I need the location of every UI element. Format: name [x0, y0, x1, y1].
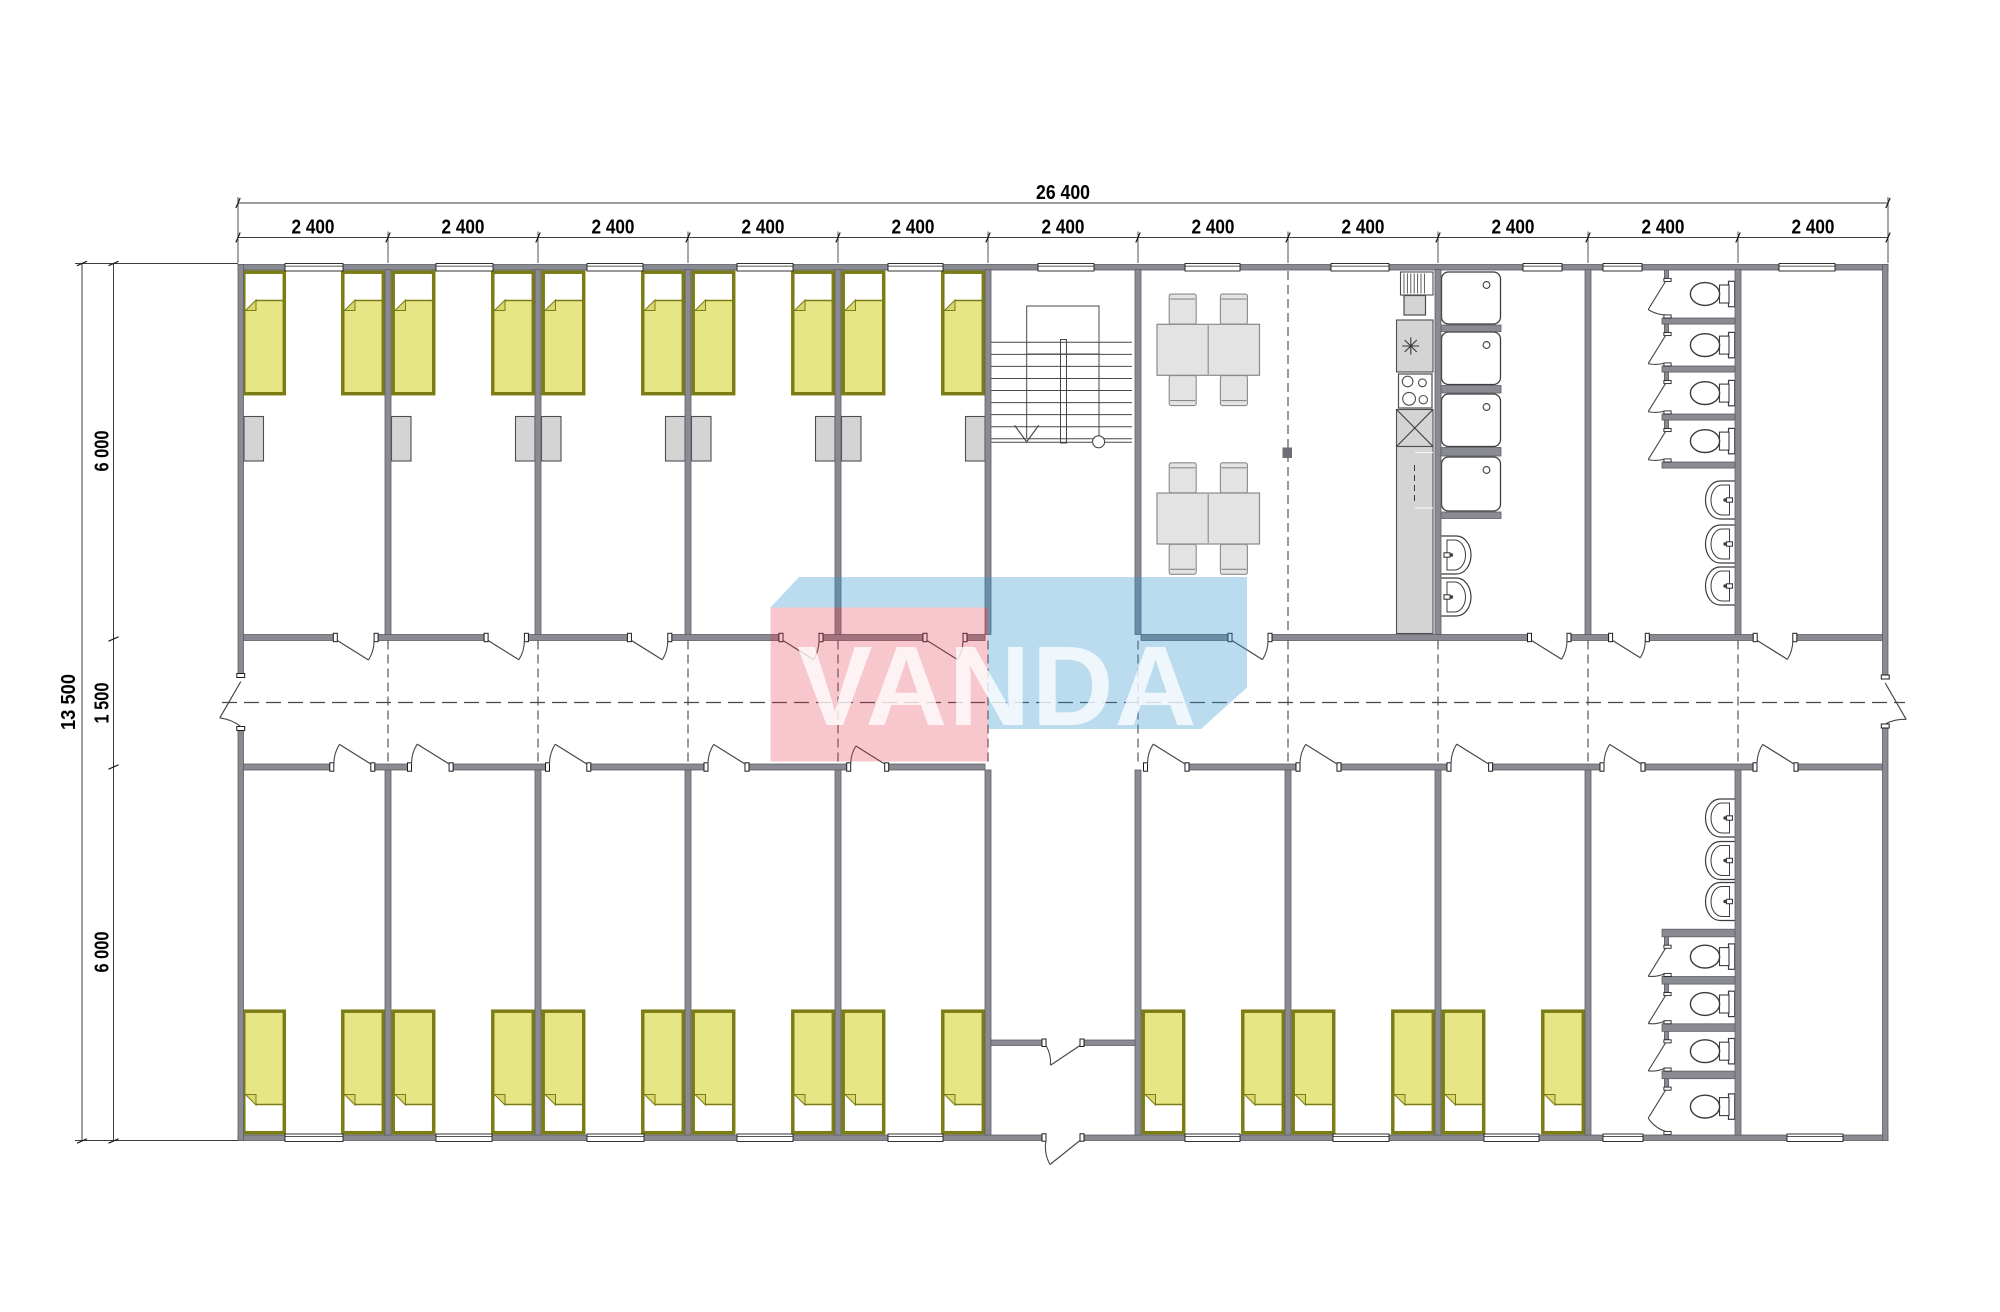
- svg-text:26 400: 26 400: [1036, 182, 1090, 204]
- svg-text:2 400: 2 400: [1042, 217, 1085, 239]
- svg-text:2 400: 2 400: [742, 217, 785, 239]
- svg-text:6 000: 6 000: [92, 932, 114, 973]
- svg-text:VANDA: VANDA: [797, 623, 1198, 749]
- svg-text:2 400: 2 400: [892, 217, 935, 239]
- svg-text:2 400: 2 400: [1192, 217, 1235, 239]
- svg-text:1 500: 1 500: [92, 683, 114, 724]
- svg-text:2 400: 2 400: [442, 217, 485, 239]
- svg-text:2 400: 2 400: [1342, 217, 1385, 239]
- svg-text:13 500: 13 500: [58, 674, 80, 730]
- svg-text:2 400: 2 400: [1792, 217, 1835, 239]
- svg-text:2 400: 2 400: [592, 217, 635, 239]
- svg-text:2 400: 2 400: [1642, 217, 1685, 239]
- svg-text:6 000: 6 000: [92, 431, 114, 472]
- svg-text:2 400: 2 400: [292, 217, 335, 239]
- svg-text:2 400: 2 400: [1492, 217, 1535, 239]
